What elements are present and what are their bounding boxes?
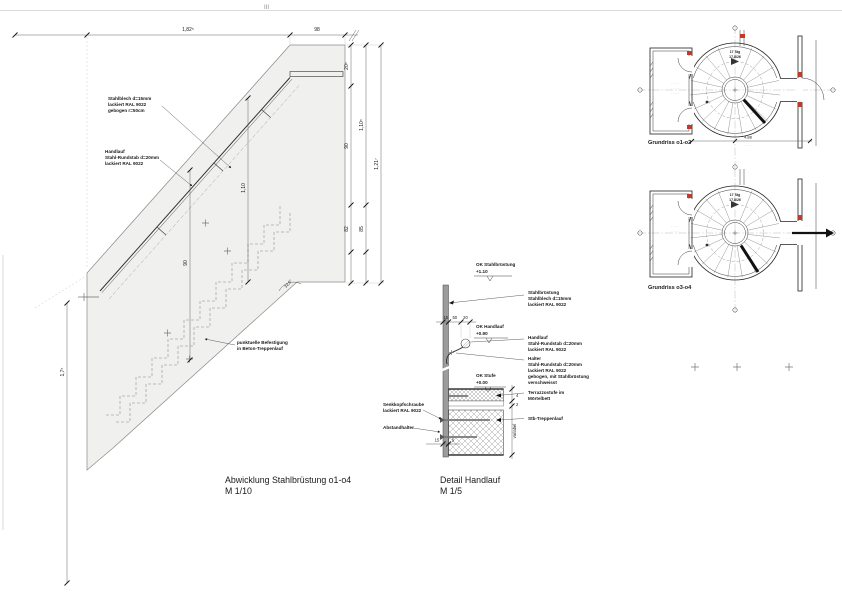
level-bruestung-value: +1.10 — [476, 269, 488, 274]
plan2-steps-note-2: 17,8/26 — [729, 198, 741, 202]
plan1-dim: 4,88 · · · · · — [690, 135, 812, 148]
note-blech-2: lackiert RAL 9022 — [108, 102, 147, 107]
note-d-halter-5: verschweisst — [528, 380, 557, 385]
plan1-caption: Grundriss o1-o2 — [648, 140, 691, 146]
note-d-schraube-2: lackiert RAL 9022 — [383, 408, 422, 413]
fold-mark: III — [264, 5, 269, 11]
note-d-stb: Stb-Treppenlauf — [528, 416, 563, 421]
dim-right-2: 90 — [344, 143, 350, 149]
dim-detail-right: 4 2 variabel — [510, 385, 520, 459]
plan1-inner-text: · · · · · — [744, 82, 752, 86]
note-d-terrazzo-1: Terrazzostufe im — [528, 390, 564, 395]
level-handlauf-label: OK Handlauf — [476, 324, 504, 329]
note-d-bruestung-2: Stahlblech d=15mm — [528, 296, 571, 301]
red-marker — [687, 194, 692, 198]
note-blech-3: gebogen r=50cm — [108, 108, 145, 113]
elevation-title: Abwicklung Stahlbrüstung o1-o4 — [225, 475, 351, 485]
step-wedge — [741, 246, 758, 273]
steel-sheet-bar — [443, 285, 449, 457]
dim-detail-top: 15 50 20 — [436, 315, 476, 338]
step-wedge — [744, 100, 765, 123]
red-marker — [740, 34, 745, 38]
drawing-sheet: III — [0, 0, 842, 595]
dim-left: 1,7⁵ — [35, 276, 86, 586]
note-d-terrazzo-2: Mörtelbett — [528, 396, 551, 401]
plan2-room-text: · · · · · — [671, 229, 679, 233]
plan-2: · · · · · 17 Stg 17,8/26 · · · · · · · ·… — [638, 169, 836, 313]
detail-drawing: OK Stahlbrüstung +1.10 15 50 20 OK Handl… — [383, 262, 589, 496]
plan1-dim-note: · · · · · — [744, 143, 752, 147]
plan2-caption: Grundriss o3-o4 — [648, 285, 692, 291]
detail-notes-left: Senkkopfschraube lackiert RAL 9022 Absta… — [383, 402, 441, 432]
note-handlauf-2: Stahl-Rundstab d=20mm — [105, 155, 159, 160]
note-d-bruestung-1: Stahlbrüstung — [528, 290, 559, 295]
detail-title: Detail Handlauf — [440, 475, 501, 485]
detail-scale: M 1/5 — [440, 486, 462, 496]
plan1-room-text: · · · · · — [671, 91, 679, 95]
plan2-steps-note: 17 Stg — [730, 193, 741, 197]
dim-top-2: 98 — [314, 27, 320, 33]
level-stufe-value: +0.00 — [476, 380, 488, 385]
note-d-halter-3: lackiert RAL 9022 — [528, 368, 567, 373]
note-d-halter-4: gebogen, mit Stahlbrüstung — [528, 374, 589, 379]
note-d-schraube-1: Senkkopfschraube — [383, 402, 425, 407]
red-marker — [687, 125, 692, 129]
note-d-abstandhalter: Abstandhalter — [383, 425, 414, 430]
plan2-room-text: · · · · · — [671, 224, 679, 228]
dim-right-4: 1,10⁵ — [359, 119, 365, 131]
dim-right-5: 85 — [359, 226, 365, 232]
elevation-drawing: 1,82⁵ 98 20⁵ 90 82 1,10⁵ 85 1, — [13, 27, 385, 586]
dim-left-label: 1,7⁵ — [60, 367, 66, 376]
handrail-section — [447, 339, 471, 364]
note-d-handlauf-1: Handlauf — [528, 335, 548, 340]
red-marker — [798, 215, 802, 220]
plan2-left-room — [650, 191, 694, 277]
dim-right-6: 1,21⁷ — [374, 158, 380, 170]
plan1-steps-note: 17 Stg — [730, 50, 741, 54]
note-d-handlauf-2: Stahl-Rundstab d=20mm — [528, 341, 582, 346]
level-bruestung-label: OK Stahlbrüstung — [476, 262, 515, 267]
note-d-bruestung-3: lackiert RAL 9022 — [528, 302, 567, 307]
plan-1: 17 Stg 17,8/26 · · · · · · · · · · · · ·… — [638, 26, 836, 170]
note-d-halter-2: Stahl-Rundstab d=20mm — [528, 362, 582, 367]
plan1-room-text: · · · · · — [671, 81, 679, 85]
note-befestigung-2: in Beton-Treppenlauf — [237, 346, 283, 351]
dim-t3: 20 — [463, 315, 468, 320]
elevation-scale: M 1/10 — [225, 486, 252, 496]
level-stufe-label: OK Stufe — [476, 373, 496, 378]
dim-t2: 50 — [452, 315, 457, 320]
dim-right-3: 82 — [344, 226, 350, 232]
dim-t1: 15 — [443, 315, 448, 320]
step-buildup — [449, 389, 504, 455]
note-d-handlauf-3: lackiert RAL 9022 — [528, 347, 567, 352]
plan1-steps-note-2: 17,8/26 — [729, 55, 741, 59]
red-marker — [798, 102, 802, 107]
red-marker — [798, 72, 802, 77]
level-bruestung: OK Stahlbrüstung +1.10 — [474, 262, 515, 281]
exit-arrow-note: · · · · · — [804, 223, 812, 227]
level-handlauf-value: +0.90 — [476, 331, 488, 336]
red-marker — [687, 51, 692, 55]
dim-right: 20⁵ 90 82 1,10⁵ 85 1,21⁷ — [344, 43, 384, 286]
note-d-halter-1: Halter — [528, 356, 541, 361]
dim-inner-2: 90 — [183, 260, 189, 266]
plan1-right-wall — [781, 36, 824, 148]
plan2-side-text: · · · · · — [786, 236, 794, 240]
dim-variabel: variabel — [512, 424, 517, 439]
dim-r2: 2 — [516, 402, 519, 407]
plan1-room-text: · · · · · — [671, 86, 679, 90]
dim-right-1: 20⁵ — [344, 62, 350, 70]
note-handlauf-3: lackiert RAL 9022 — [105, 161, 144, 166]
dim-b1: 15 — [435, 438, 440, 443]
survey-crosses — [691, 363, 793, 371]
dim-inner-1: 1,10 — [241, 183, 247, 193]
note-befestigung-1: punktuelle Befestigung — [237, 340, 288, 345]
plan2-right-wall — [781, 179, 816, 291]
dim-top-1: 1,82⁵ — [182, 27, 194, 33]
note-blech-1: Stahlblech d=15mm — [108, 96, 151, 101]
plan1-dim-label: 4,88 — [744, 135, 753, 140]
note-handlauf-1: Handlauf — [105, 149, 125, 154]
plan2-top-wall — [740, 169, 744, 185]
